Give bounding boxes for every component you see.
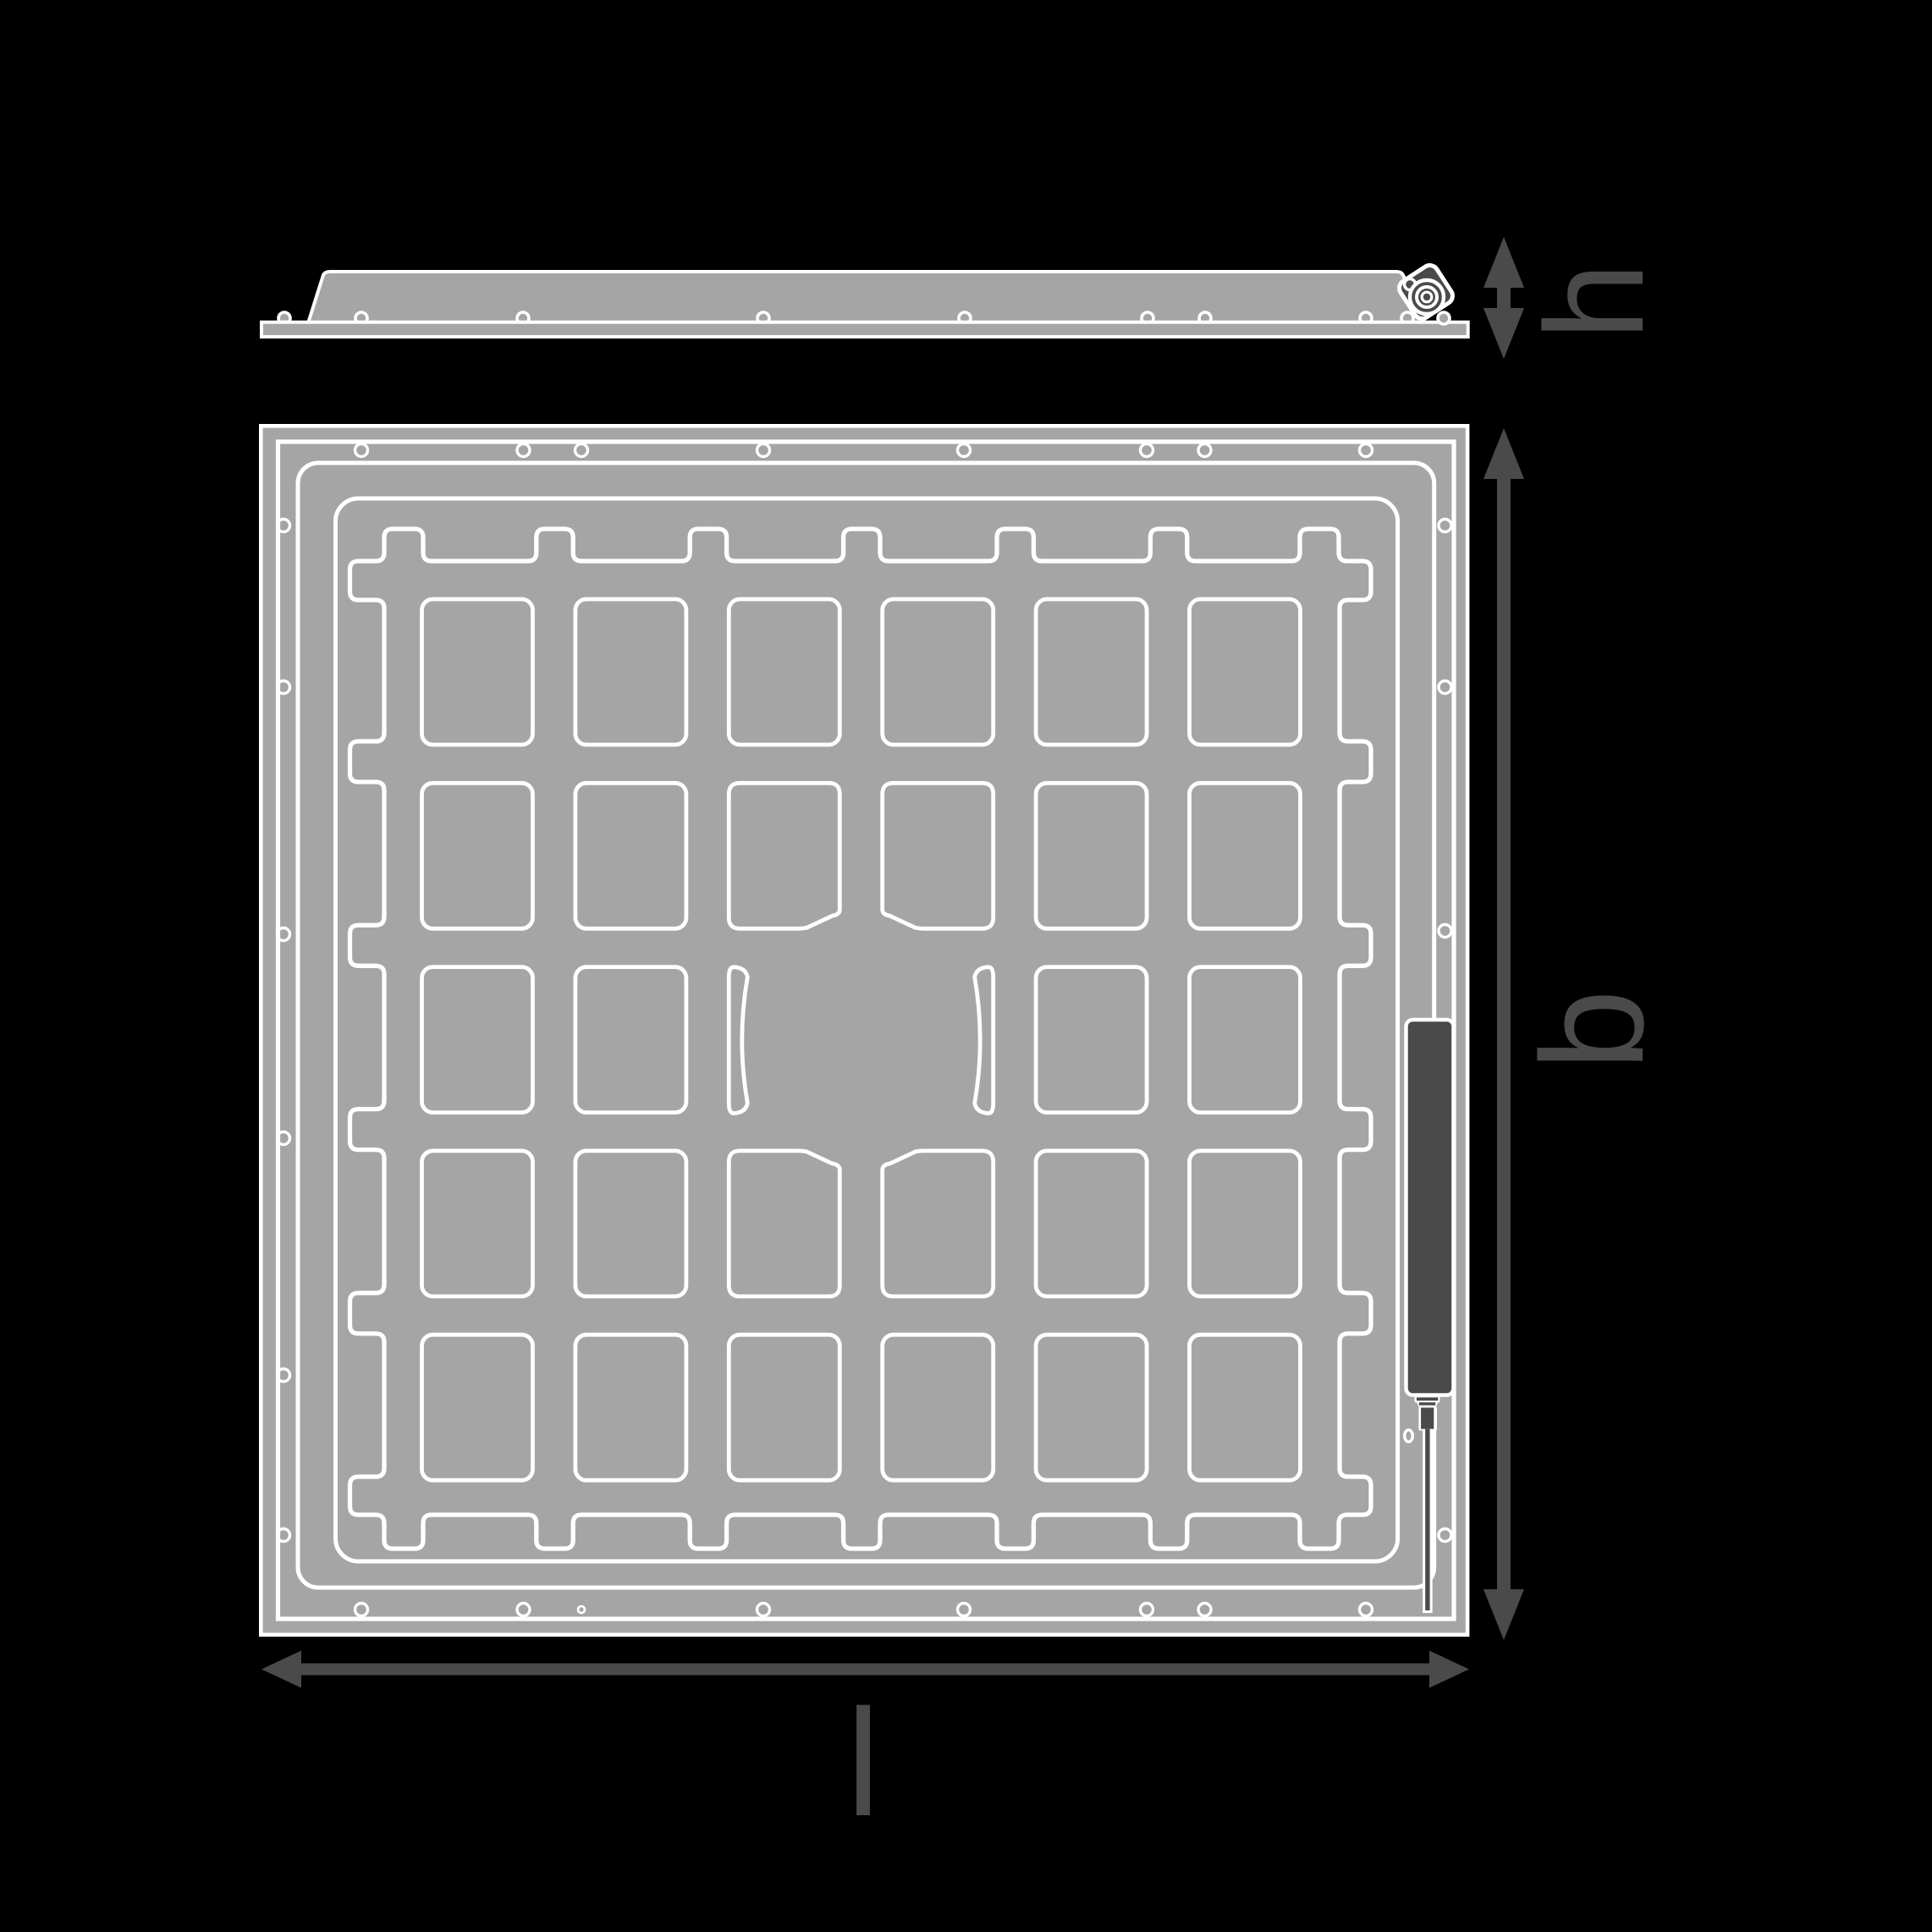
svg-text:h: h <box>1516 262 1672 340</box>
svg-text:b: b <box>1511 989 1674 1071</box>
svg-text:l: l <box>846 1678 880 1848</box>
